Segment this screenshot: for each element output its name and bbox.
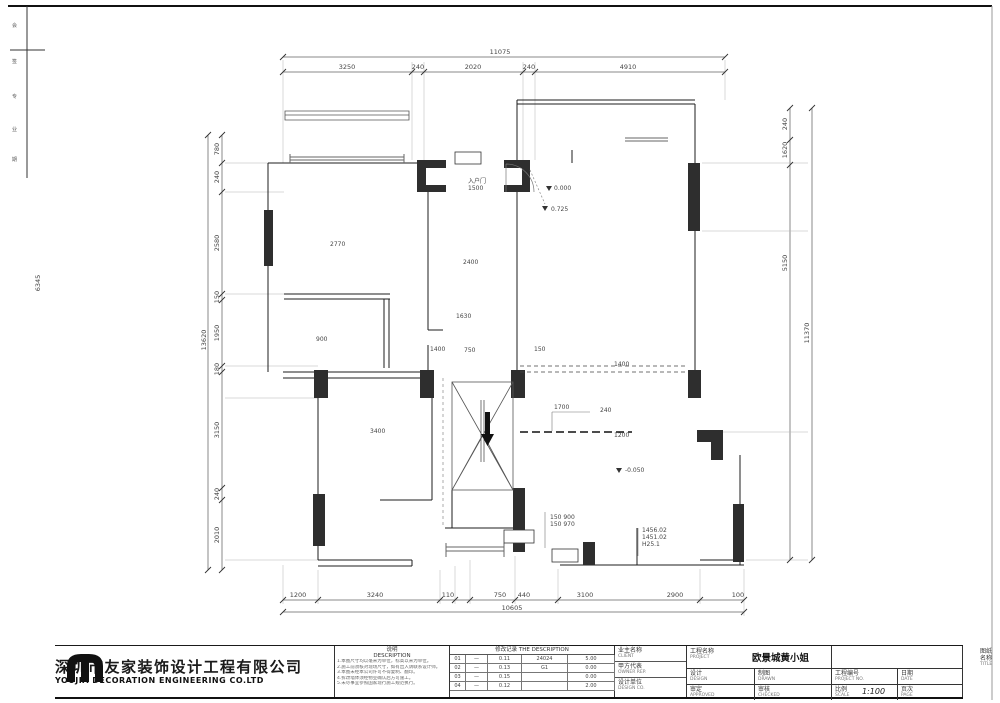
- fields-row-2: 设计 DESIGN 制图 DRAWN 工程编号 PROJECT NO. 日期 D…: [687, 669, 962, 685]
- field-label-cn: 设计: [690, 670, 751, 677]
- notes-section: 说明 DESCRIPTION 1.本图尺寸均以毫米为单位，标高以米为单位。 2.…: [335, 646, 450, 697]
- revision-cell: 0.15: [488, 673, 522, 682]
- revision-cell: 03: [450, 673, 466, 682]
- field-page: 页次 PAGE: [898, 685, 963, 700]
- revision-cell: —: [466, 655, 488, 664]
- dim-label: 2580: [213, 235, 221, 252]
- fold-mark-char: 期: [12, 156, 17, 163]
- revision-cell: 04: [450, 682, 466, 691]
- annotation: 1400: [430, 346, 445, 353]
- revision-cell: 0.13: [488, 664, 522, 673]
- company-section: 深圳市友家装饰设计工程有限公司 YOUJIA DECORATION ENGINE…: [55, 646, 335, 697]
- dim-label: 2020: [465, 63, 482, 71]
- revision-table-section: 修改记录 THE DESCRIPTION 01 — 0.11 24024 5.0…: [450, 646, 615, 697]
- dim-label: 100: [732, 591, 744, 599]
- fields-row-3: 审定 APPROVED 审核 CHECKED 比例 SCALE 1:100 页次…: [687, 685, 962, 700]
- annotation: 2400: [463, 259, 478, 266]
- annotation: 0.000: [554, 185, 571, 192]
- revision-cell: 02: [450, 664, 466, 673]
- dim-label: 240: [213, 171, 221, 183]
- field-label-en: DESIGN: [690, 677, 751, 682]
- dim-label: 1620: [781, 142, 789, 159]
- dim-label: 240: [412, 63, 424, 71]
- field-label-cn: 审定: [690, 686, 751, 693]
- field-label-cn: 日期: [901, 670, 960, 677]
- client-label-en: CLIENT: [618, 654, 683, 659]
- dim-label: 1950: [213, 325, 221, 342]
- dim-label: 240: [781, 118, 789, 130]
- client-label-cn: 设计单位: [618, 679, 683, 686]
- dim-label: 11075: [490, 48, 511, 56]
- field-date: 日期 DATE: [898, 669, 963, 684]
- annotation: 1630: [456, 313, 471, 320]
- revision-cell: —: [466, 673, 488, 682]
- dim-label: 110: [442, 591, 454, 599]
- revision-cell: 2.00: [568, 682, 615, 691]
- field-label-en: APPROVED: [690, 693, 751, 698]
- field-label-en: DRAWN: [758, 677, 828, 682]
- annotation: 1456.02: [642, 527, 667, 534]
- client-field: 甲方代表 OWNER REP.: [615, 662, 686, 678]
- field-label-en: PROJECT NO.: [835, 677, 894, 682]
- plan-annotations: 入户门 1500 0.000 0.725 -0.050 2770 2400 16…: [316, 177, 667, 548]
- note-line: 5.未尽事宜参照国家现行施工规范执行。: [337, 681, 447, 687]
- fold-mark-char: 专: [12, 93, 17, 100]
- drawing-title-cell: 图纸名称 TITLE 一楼原始结构图: [832, 646, 963, 669]
- dim-label: 240: [213, 488, 221, 500]
- field-label-en: CHECKED: [758, 693, 828, 698]
- revision-table: 01 — 0.11 24024 5.00 02 — 0.13 G1 0.00 0…: [450, 654, 614, 691]
- drawing-label-en: TITLE: [980, 662, 992, 667]
- client-label-cn: 业主名称: [618, 647, 683, 654]
- revision-cell: 0.00: [568, 664, 615, 673]
- annotation: 0.725: [551, 206, 568, 213]
- annotation: 2770: [330, 241, 345, 248]
- note-line: 1.本图尺寸均以毫米为单位，标高以米为单位。: [337, 659, 447, 665]
- fold-mark-char: 业: [12, 126, 17, 133]
- revision-cell: 0.12: [488, 682, 522, 691]
- company-logo-icon: [63, 648, 107, 688]
- bay-window: [285, 111, 409, 120]
- field-scale: 比例 SCALE 1:100: [832, 685, 898, 700]
- revision-cell: 01: [450, 655, 466, 664]
- annotation: H25.1: [642, 541, 660, 548]
- annotation: 3400: [370, 428, 385, 435]
- revision-title-cn: 修改记录: [495, 647, 517, 653]
- client-field: 设计单位 DESIGN CO.: [615, 678, 686, 694]
- dim-label: 3240: [367, 591, 384, 599]
- annotation: 150 900: [550, 514, 575, 521]
- field-label-cn: 制图: [758, 670, 828, 677]
- stair-direction-arrow: [481, 412, 494, 446]
- revision-cell: 24024: [522, 655, 568, 664]
- annotation: 1400: [614, 361, 629, 368]
- annotation: 入户门: [468, 177, 486, 185]
- dim-label: 780: [213, 143, 221, 155]
- client-label-cn: 甲方代表: [618, 663, 683, 670]
- dim-label: 3250: [339, 63, 356, 71]
- annotation: 1451.02: [642, 534, 667, 541]
- dim-label: 2010: [213, 527, 221, 544]
- annotation: 900: [316, 336, 328, 343]
- annotation: 150 970: [550, 521, 575, 528]
- level-markers: [542, 186, 622, 473]
- client-label-en: OWNER REP.: [618, 670, 683, 675]
- annotation: 240: [600, 407, 612, 414]
- fold-mark-char: 会: [12, 22, 17, 29]
- dim-label: 150: [213, 291, 221, 303]
- client-field: 业主名称 CLIENT: [615, 646, 686, 662]
- dim-label: 750: [494, 591, 506, 599]
- client-label-en: DESIGN CO.: [618, 686, 683, 691]
- dim-label: 6345: [34, 275, 42, 292]
- dim-label: 13620: [200, 330, 208, 351]
- field-drawn: 制图 DRAWN: [755, 669, 832, 684]
- project-label-en: PROJECT: [690, 655, 714, 660]
- scale-value: 1:100: [862, 687, 885, 696]
- project-name: 欧景城黄小姐: [733, 650, 828, 664]
- field-label-cn: 审核: [758, 686, 828, 693]
- drawing-sheet: 11075 3250 240 2020 240 4910 1200 3240 1…: [0, 0, 1000, 703]
- dim-label: 3150: [213, 422, 221, 439]
- dim-label: 11370: [803, 323, 811, 344]
- project-section: 工程名称 PROJECT 欧景城黄小姐 图纸名称 TITLE 一楼原始结构图 设…: [687, 646, 963, 697]
- shear-walls: [264, 160, 744, 565]
- leader-dotted: [530, 170, 545, 204]
- title-block: 深圳市友家装饰设计工程有限公司 YOUJIA DECORATION ENGINE…: [55, 645, 963, 699]
- revision-cell: —: [466, 664, 488, 673]
- annotation: 1700: [554, 404, 569, 411]
- field-design: 设计 DESIGN: [687, 669, 755, 684]
- dashed-walls: [520, 366, 688, 372]
- field-checked: 审核 CHECKED: [755, 685, 832, 700]
- revision-cell: [522, 673, 568, 682]
- annotation: -0.050: [625, 467, 645, 474]
- dimension-lines: [208, 57, 812, 612]
- dim-label: 1200: [290, 591, 307, 599]
- field-label-cn: 工程编号: [835, 670, 894, 677]
- project-label-cn: 工程名称: [690, 648, 714, 655]
- revision-cell: 5.00: [568, 655, 615, 664]
- dim-label: 240: [523, 63, 535, 71]
- annotation: 150: [534, 346, 546, 353]
- annotation: 750: [464, 347, 476, 354]
- revision-cell: —: [466, 682, 488, 691]
- revision-cell: [522, 682, 568, 691]
- dim-label: 5150: [781, 255, 789, 272]
- revision-cell: 0.11: [488, 655, 522, 664]
- project-row: 工程名称 PROJECT 欧景城黄小姐 图纸名称 TITLE 一楼原始结构图: [687, 646, 962, 669]
- dim-label: 4910: [620, 63, 637, 71]
- dim-label: 3100: [577, 591, 594, 599]
- revision-title-en: THE DESCRIPTION: [519, 647, 569, 653]
- annotation: 1500: [468, 185, 483, 192]
- dim-label: 440: [518, 591, 530, 599]
- field-label-en: PAGE: [901, 693, 960, 698]
- field-project-no: 工程编号 PROJECT NO.: [832, 669, 898, 684]
- revision-cell: 0.00: [568, 673, 615, 682]
- field-approved: 审定 APPROVED: [687, 685, 755, 700]
- window-lines: [290, 138, 668, 557]
- client-section: 业主名称 CLIENT 甲方代表 OWNER REP. 设计单位 DESIGN …: [615, 646, 687, 697]
- dim-label: 180: [213, 363, 221, 375]
- field-label-en: DATE: [901, 677, 960, 682]
- annotation: 1200: [614, 432, 629, 439]
- drawing-label-cn: 图纸名称: [980, 648, 992, 662]
- dim-label: 2900: [667, 591, 684, 599]
- field-label-cn: 页次: [901, 686, 960, 693]
- floor-plan-canvas: 11075 3250 240 2020 240 4910 1200 3240 1…: [0, 0, 1000, 703]
- revision-cell: G1: [522, 664, 568, 673]
- project-name-cell: 工程名称 PROJECT 欧景城黄小姐: [687, 646, 832, 669]
- fold-mark-char: 签: [12, 58, 17, 65]
- dim-label: 10605: [502, 604, 523, 612]
